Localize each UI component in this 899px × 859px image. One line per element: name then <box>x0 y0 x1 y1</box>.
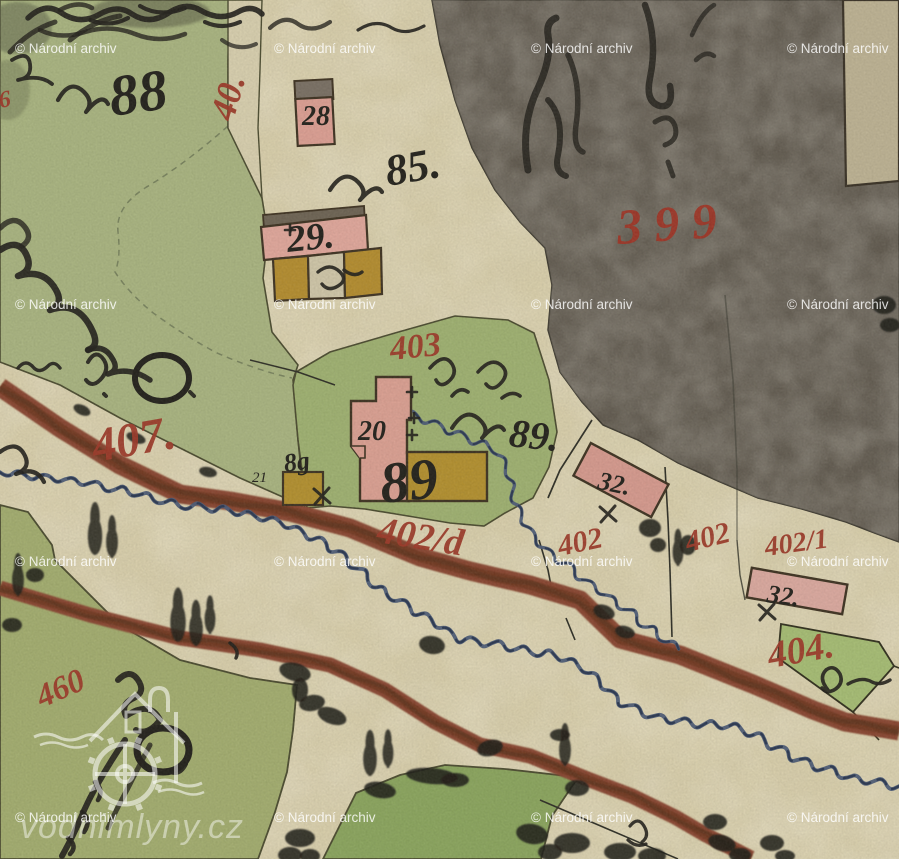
svg-text:© Národní archiv: © Národní archiv <box>15 297 117 312</box>
svg-text:© Národní archiv: © Národní archiv <box>531 810 633 825</box>
svg-text:© Národní archiv: © Národní archiv <box>274 41 376 56</box>
svg-text:© Národní archiv: © Národní archiv <box>15 41 117 56</box>
svg-text:© Národní archiv: © Národní archiv <box>531 297 633 312</box>
svg-text:© Národní archiv: © Národní archiv <box>274 810 376 825</box>
svg-text:© Národní archiv: © Národní archiv <box>274 297 376 312</box>
svg-text:vodnimlyny.cz: vodnimlyny.cz <box>20 808 244 846</box>
svg-text:© Národní archiv: © Národní archiv <box>787 810 889 825</box>
svg-text:© Národní archiv: © Národní archiv <box>531 41 633 56</box>
svg-text:© Národní archiv: © Národní archiv <box>787 554 889 569</box>
svg-text:© Národní archiv: © Národní archiv <box>15 554 117 569</box>
svg-text:© Národní archiv: © Národní archiv <box>531 554 633 569</box>
svg-text:© Národní archiv: © Národní archiv <box>274 554 376 569</box>
svg-text:© Národní archiv: © Národní archiv <box>787 41 889 56</box>
svg-text:© Národní archiv: © Národní archiv <box>787 297 889 312</box>
